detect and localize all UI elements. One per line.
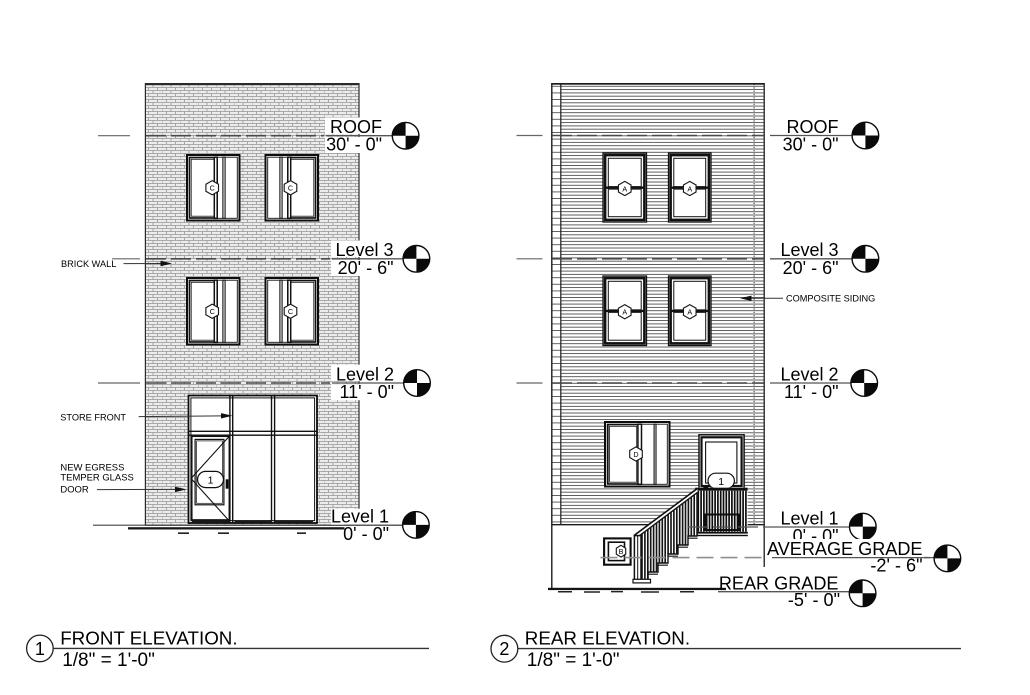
svg-text:30' - 0": 30' - 0" <box>783 135 839 155</box>
svg-text:C: C <box>210 184 215 193</box>
svg-text:20' - 6": 20' - 6" <box>783 258 839 278</box>
svg-text:B: B <box>619 547 624 556</box>
svg-text:C: C <box>288 307 293 316</box>
svg-text:1: 1 <box>35 639 45 659</box>
svg-text:11' - 0": 11' - 0" <box>784 382 839 402</box>
svg-text:1/8" = 1'-0": 1/8" = 1'-0" <box>62 650 155 671</box>
svg-text:COMPOSITE SIDING: COMPOSITE SIDING <box>786 294 875 304</box>
svg-text:1: 1 <box>208 475 214 487</box>
svg-text:-2' - 6": -2' - 6" <box>870 556 922 576</box>
svg-text:REAR ELEVATION.: REAR ELEVATION. <box>525 627 690 648</box>
svg-text:C: C <box>288 184 293 193</box>
svg-text:-5' - 0": -5' - 0" <box>788 590 840 610</box>
svg-text:FRONT ELEVATION.: FRONT ELEVATION. <box>60 627 237 648</box>
svg-text:20' - 6": 20' - 6" <box>338 258 394 278</box>
svg-text:A: A <box>622 184 627 193</box>
svg-text:C: C <box>210 307 215 316</box>
svg-text:1: 1 <box>718 476 724 488</box>
svg-text:D: D <box>633 450 638 459</box>
svg-text:DOOR: DOOR <box>60 485 88 496</box>
svg-text:A: A <box>687 184 692 193</box>
svg-text:2: 2 <box>499 639 509 659</box>
svg-text:A: A <box>687 308 692 317</box>
svg-text:STORE FRONT: STORE FRONT <box>60 413 126 423</box>
svg-text:BRICK WALL: BRICK WALL <box>61 259 116 269</box>
svg-text:11' - 0": 11' - 0" <box>339 382 394 402</box>
svg-text:TEMPER GLASS: TEMPER GLASS <box>60 473 133 484</box>
svg-text:1/8" = 1'-0": 1/8" = 1'-0" <box>527 650 620 671</box>
svg-text:0' - 0": 0' - 0" <box>343 524 389 544</box>
svg-text:30' - 0": 30' - 0" <box>326 135 382 155</box>
svg-text:A: A <box>622 308 627 317</box>
